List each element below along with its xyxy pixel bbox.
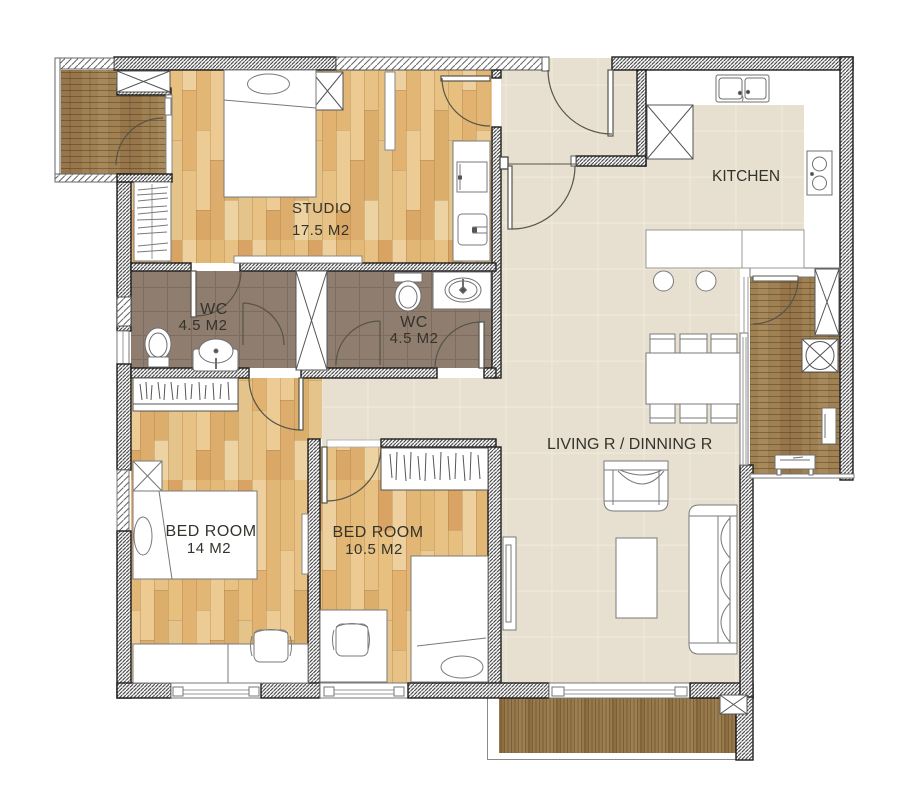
svg-text:4.5 M2: 4.5 M2 [179, 317, 228, 334]
svg-text:4.5 M2: 4.5 M2 [390, 330, 439, 347]
svg-text:KITCHEN: KITCHEN [712, 168, 780, 185]
svg-text:WC: WC [200, 301, 228, 318]
svg-text:17.5 M2: 17.5 M2 [292, 222, 350, 239]
svg-text:14 M2: 14 M2 [187, 540, 231, 557]
svg-text:LIVING R / DINNING R: LIVING R / DINNING R [547, 436, 712, 453]
svg-text:BED ROOM: BED ROOM [165, 523, 256, 540]
svg-text:WC: WC [400, 314, 428, 331]
svg-text:STUDIO: STUDIO [292, 200, 352, 217]
svg-text:10.5 M2: 10.5 M2 [345, 541, 403, 558]
svg-text:BED ROOM: BED ROOM [332, 524, 423, 541]
